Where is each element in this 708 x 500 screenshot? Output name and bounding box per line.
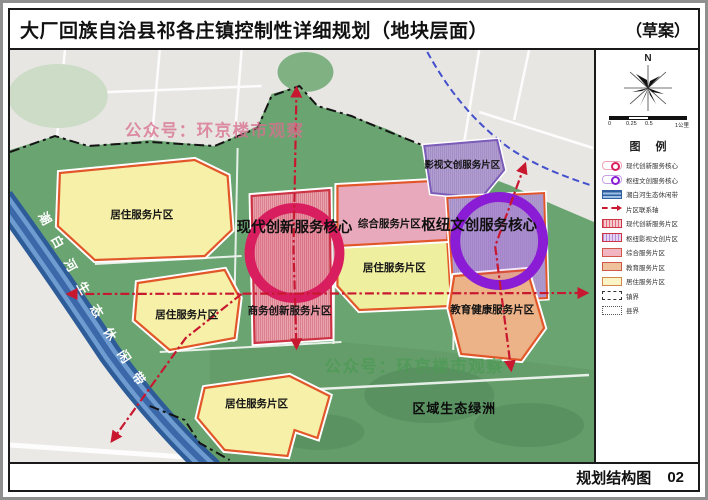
river-belt-icon [602, 190, 622, 199]
scale-tick-0: 0 [608, 121, 611, 127]
label-oasis: 区域生态绿洲 [412, 401, 496, 416]
footer-bar: 规划结构图 02 [10, 462, 698, 490]
film-zone-icon [602, 233, 622, 242]
sheet-number: 02 [667, 469, 684, 486]
modern-zone-icon [602, 219, 622, 228]
label-residential-w: 居住服务片区 [155, 308, 218, 321]
legend-item-film-zone: 枢纽影视文创片区 [602, 233, 694, 243]
hub-core-icon [602, 175, 622, 184]
watermark-top: 公众号：环京楼市观察 [125, 121, 305, 140]
legend-panel: N 0 [594, 50, 698, 462]
paper: 大厂回族自治县祁各庄镇控制性详细规划（地块层面） （草案） [3, 3, 705, 497]
legend-item-modern-zone: 现代创新服务片区 [602, 218, 694, 228]
comprehensive-zone-icon [602, 248, 622, 257]
plan-title: 大厂回族自治县祁各庄镇控制性详细规划（地块层面） [20, 16, 488, 43]
legend-item-river-belt: 潮白河生态休闲带 [602, 189, 694, 199]
county-boundary-icon [602, 306, 622, 315]
label-business: 商务创新服务片区 [248, 304, 332, 317]
planning-map: 公众号：环京楼市观察 公众号：环京楼市观察 居住服务片区 居住服务片区 居住服务… [10, 50, 594, 462]
label-film: 影视文创服务片区 [424, 159, 500, 171]
watermark-bottom: 公众号：环京楼市观察 [325, 357, 505, 376]
map-row: 公众号：环京楼市观察 公众号：环京楼市观察 居住服务片区 居住服务片区 居住服务… [10, 50, 698, 462]
legend-item-comprehensive-zone: 综合服务片区 [602, 247, 694, 257]
legend-item-axis: 片区联系轴 [602, 204, 694, 214]
zone-residential-c [337, 240, 451, 310]
axis-icon [602, 205, 622, 212]
scale-tick-05: 0.5 [645, 121, 653, 127]
title-bar: 大厂回族自治县祁各庄镇控制性详细规划（地块层面） （草案） [10, 10, 698, 50]
legend-item-education-zone: 教育服务片区 [602, 262, 694, 272]
scale-tick-1km: 1公里 [675, 121, 689, 129]
legend-item-town-boundary: 镇界 [602, 291, 694, 301]
label-modern-core: 现代创新服务核心 [237, 218, 353, 236]
legend-item-county-boundary: 县界 [602, 305, 694, 315]
map-panel: 公众号：环京楼市观察 公众号：环京楼市观察 居住服务片区 居住服务片区 居住服务… [10, 50, 594, 462]
page: 大厂回族自治县祁各庄镇控制性详细规划（地块层面） （草案） [0, 0, 708, 500]
compass-rose-icon [622, 64, 674, 112]
draft-tag: （草案） [626, 17, 690, 41]
town-boundary-icon [602, 291, 622, 300]
label-residential-s: 居住服务片区 [225, 397, 288, 410]
label-education: 教育健康服务片区 [449, 303, 534, 316]
modern-core-icon [602, 161, 622, 170]
north-label: N [602, 54, 694, 64]
legend-item-modern-core: 现代创新服务核心 [602, 160, 694, 170]
plan-sheet-frame: 大厂回族自治县祁各庄镇控制性详细规划（地块层面） （草案） [8, 8, 700, 492]
legend-heading: 图 例 [602, 138, 694, 154]
scale-ticks: 0 0.25 0.5 1公里 [609, 120, 687, 130]
education-zone-icon [602, 262, 622, 271]
residential-zone-icon [602, 277, 622, 286]
label-comprehensive: 综合服务片区 [358, 217, 421, 230]
sheet-title: 规划结构图 [576, 467, 651, 488]
legend-item-hub-core: 枢纽文创服务核心 [602, 175, 694, 185]
label-residential-c: 居住服务片区 [363, 261, 426, 274]
scale-bar: 0 0.25 0.5 1公里 [609, 116, 687, 132]
scale-tick-025: 0.25 [626, 121, 637, 127]
label-residential-nw: 居住服务片区 [110, 208, 173, 221]
legend-item-residential-zone: 居住服务片区 [602, 276, 694, 286]
label-hub-core: 枢纽文创服务核心 [421, 216, 537, 234]
